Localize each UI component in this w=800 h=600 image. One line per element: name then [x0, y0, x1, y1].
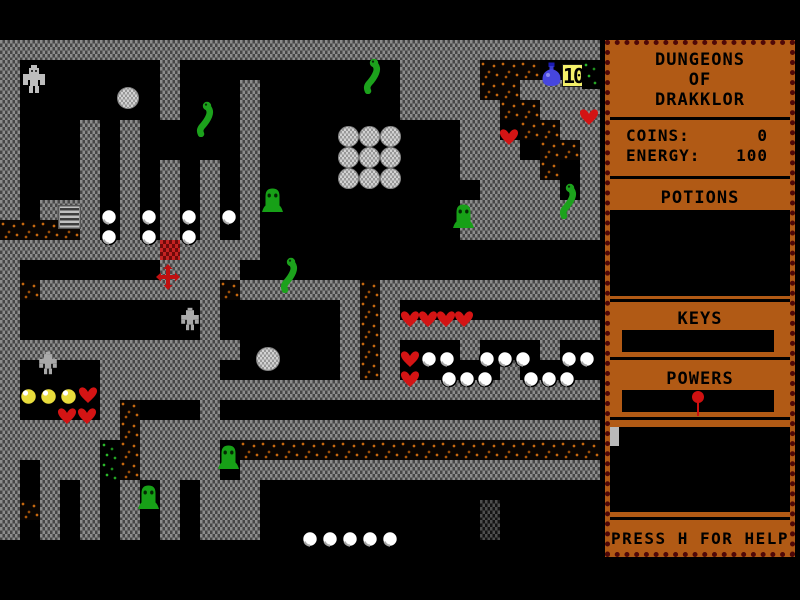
emerald-sparkle-item: [582, 60, 600, 89]
divider: [610, 357, 790, 360]
rubble-tile: [500, 100, 520, 120]
wall-tile: [120, 280, 140, 300]
wall-tile: [200, 240, 220, 260]
heart-item: [57, 407, 77, 425]
wall-tile: [480, 160, 500, 180]
wall-tile: [280, 420, 300, 440]
wall-tile: [180, 260, 200, 280]
wall-tile: [0, 260, 20, 280]
wall-tile: [160, 440, 180, 460]
pearl-item: [321, 530, 339, 548]
wall-tile: [320, 280, 340, 300]
wall-tile: [420, 460, 440, 480]
keys-bar: [622, 330, 774, 352]
pearl-item: [301, 530, 319, 548]
gold-coin-item: [59, 387, 78, 406]
heart-item: [454, 310, 474, 328]
dungeon-map[interactable]: 10: [0, 0, 600, 600]
wall-tile: [240, 280, 260, 300]
wall-tile: [580, 140, 600, 160]
wall-tile: [260, 380, 280, 400]
heart-item: [499, 128, 519, 146]
pearl-item: [361, 530, 379, 548]
wall-tile: [380, 300, 400, 320]
wall-tile: [200, 380, 220, 400]
wall-tile: [460, 120, 480, 140]
wall-tile: [0, 520, 20, 540]
wall-tile: [360, 460, 380, 480]
rubble-tile: [0, 220, 20, 240]
wall-tile: [280, 460, 300, 480]
wall-tile: [0, 340, 20, 360]
wall-tile: [100, 280, 120, 300]
wall-tile: [400, 40, 420, 60]
snake-enemy: [193, 100, 215, 137]
wall-tile: [320, 380, 340, 400]
wall-tile: [80, 160, 100, 180]
wall-tile: [0, 320, 20, 340]
wall-tile: [80, 520, 100, 540]
slime-enemy: [452, 202, 475, 229]
wall-tile: [520, 200, 540, 220]
rubble-tile: [20, 500, 40, 520]
rubble-tile: [20, 220, 40, 240]
wall-tile: [0, 160, 20, 180]
wall-tile: [460, 160, 480, 180]
wall-tile: [460, 40, 480, 60]
wall-tile: [0, 140, 20, 160]
wall-tile: [60, 440, 80, 460]
wall-tile: [20, 420, 40, 440]
wall-tile: [520, 460, 540, 480]
pearl-item: [100, 228, 118, 246]
rubble-tile: [560, 440, 580, 460]
rubble-tile: [280, 440, 300, 460]
wall-tile: [320, 40, 340, 60]
wall-tile: [100, 420, 120, 440]
wall-tile: [20, 40, 40, 60]
wall-tile: [0, 400, 20, 420]
wall-tile: [560, 320, 580, 340]
wall-tile: [180, 460, 200, 480]
rubble-tile: [500, 80, 520, 100]
wall-tile: [80, 220, 100, 240]
wall-tile: [440, 420, 460, 440]
wall-tile: [260, 460, 280, 480]
wall-tile: [100, 380, 120, 400]
rubble-tile: [300, 440, 320, 460]
wall-tile: [500, 320, 520, 340]
wall-tile: [500, 200, 520, 220]
wall-tile: [380, 40, 400, 60]
wall-tile: [180, 280, 200, 300]
red-brick-tile: [160, 240, 180, 260]
wall-tile: [200, 300, 220, 320]
wall-tile: [560, 220, 580, 240]
boulder-sprite: [338, 126, 359, 147]
wall-tile: [100, 400, 120, 420]
wall-tile: [220, 380, 240, 400]
wall-tile: [460, 60, 480, 80]
moss-tile: [100, 440, 120, 460]
rubble-tile: [520, 60, 540, 80]
divider: [610, 176, 790, 179]
wall-tile: [540, 280, 560, 300]
wall-tile: [260, 40, 280, 60]
wall-tile: [380, 320, 400, 340]
wall-tile: [0, 480, 20, 500]
wall-tile: [480, 180, 500, 200]
wall-tile: [200, 160, 220, 180]
coins-label: COINS:: [626, 126, 690, 145]
pearl-item: [440, 370, 458, 388]
wall-tile: [120, 220, 140, 240]
wall-tile: [520, 80, 540, 100]
wall-tile: [0, 200, 20, 220]
wall-tile: [360, 380, 380, 400]
wall-tile: [0, 40, 20, 60]
title-line-1: DUNGEONS: [610, 50, 790, 70]
wall-tile: [160, 220, 180, 240]
keys-heading: KEYS: [610, 309, 790, 329]
heart-item: [78, 386, 98, 404]
wall-tile: [200, 40, 220, 60]
wall-tile: [460, 460, 480, 480]
wall-tile: [380, 420, 400, 440]
pearl-item: [100, 208, 118, 226]
wall-tile: [80, 40, 100, 60]
wall-tile: [240, 80, 260, 100]
wall-tile: [300, 380, 320, 400]
wall-tile: [240, 100, 260, 120]
wall-tile: [420, 100, 440, 120]
wall-tile: [80, 500, 100, 520]
wall-tile: [560, 120, 580, 140]
wall-tile: [200, 520, 220, 540]
wall-tile: [40, 460, 60, 480]
rubble-tile: [20, 280, 40, 300]
boulder-sprite: [256, 347, 280, 371]
rubble-tile: [360, 360, 380, 380]
wall-tile: [40, 200, 60, 220]
rubble-tile: [480, 60, 500, 80]
wall-tile: [500, 420, 520, 440]
heart-item: [418, 310, 438, 328]
wall-tile: [280, 380, 300, 400]
wall-tile: [540, 220, 560, 240]
wall-tile: [420, 420, 440, 440]
wall-tile: [560, 100, 580, 120]
pearl-item: [496, 350, 514, 368]
rubble-tile: [520, 440, 540, 460]
wall-tile: [580, 280, 600, 300]
powers-bar: [622, 390, 774, 412]
slime-enemy: [137, 483, 160, 510]
boulder-sprite: [380, 168, 401, 189]
wall-tile: [580, 320, 600, 340]
wall-tile: [180, 340, 200, 360]
wall-tile: [140, 440, 160, 460]
wall-tile: [40, 520, 60, 540]
wall-tile: [420, 80, 440, 100]
wall-tile: [480, 120, 500, 140]
wall-tile: [320, 420, 340, 440]
wall-tile: [340, 340, 360, 360]
wall-tile: [400, 280, 420, 300]
wall-tile: [500, 380, 520, 400]
rubble-tile: [500, 440, 520, 460]
wall-tile: [220, 500, 240, 520]
wall-tile: [80, 280, 100, 300]
rubble-tile: [520, 100, 540, 120]
wall-tile: [80, 440, 100, 460]
wall-tile: [0, 500, 20, 520]
wall-tile: [160, 520, 180, 540]
rubble-tile: [360, 320, 380, 340]
wall-tile: [40, 500, 60, 520]
boulder-sprite: [359, 168, 380, 189]
rubble-tile: [520, 120, 540, 140]
wall-tile: [160, 360, 180, 380]
rubble-tile: [120, 420, 140, 440]
divider: [610, 417, 790, 420]
boulder-sprite: [338, 147, 359, 168]
wall-tile: [140, 380, 160, 400]
wall-tile: [580, 180, 600, 200]
wall-tile: [80, 240, 100, 260]
wall-tile: [200, 200, 220, 220]
wall-tile: [280, 40, 300, 60]
wall-tile: [180, 40, 200, 60]
coins-value: 0: [757, 126, 768, 145]
game-screen: 10 DUNGEONS OF DRAKKLOR COINS: 0 ENERGY:…: [0, 0, 800, 600]
wall-tile: [220, 240, 240, 260]
wall-tile: [580, 200, 600, 220]
wall-tile: [520, 280, 540, 300]
wall-tile: [300, 420, 320, 440]
wall-tile: [520, 420, 540, 440]
wall-tile: [460, 340, 480, 360]
wall-tile: [160, 80, 180, 100]
wall-tile: [0, 420, 20, 440]
divider: [610, 299, 790, 302]
wall-tile: [240, 220, 260, 240]
wall-tile: [300, 280, 320, 300]
wall-tile: [140, 460, 160, 480]
wall-tile: [580, 420, 600, 440]
cross-item: [156, 264, 180, 290]
pearl-item: [578, 350, 596, 368]
wall-tile: [240, 180, 260, 200]
pearl-item: [558, 370, 576, 388]
rubble-tile: [360, 440, 380, 460]
pearl-item: [522, 370, 540, 388]
wall-tile: [480, 420, 500, 440]
wall-tile: [180, 360, 200, 380]
wall-tile: [0, 80, 20, 100]
wall-tile: [240, 520, 260, 540]
powers-heading: POWERS: [610, 369, 790, 389]
wall-tile: [120, 380, 140, 400]
rubble-tile: [220, 280, 240, 300]
wall-tile: [440, 280, 460, 300]
wall-tile: [80, 180, 100, 200]
wall-tile: [240, 460, 260, 480]
wall-tile: [160, 380, 180, 400]
wall-tile: [380, 380, 400, 400]
wall-tile: [380, 460, 400, 480]
wall-tile: [480, 100, 500, 120]
wall-tile: [580, 460, 600, 480]
wall-tile: [120, 40, 140, 60]
dark-wall-tile: [480, 520, 500, 540]
wall-tile: [120, 360, 140, 380]
rubble-tile: [260, 440, 280, 460]
wall-tile: [240, 200, 260, 220]
wall-tile: [460, 80, 480, 100]
wall-tile: [340, 320, 360, 340]
wall-tile: [0, 240, 20, 260]
wall-tile: [380, 340, 400, 360]
wall-tile: [120, 340, 140, 360]
heart-item: [77, 407, 97, 425]
wall-tile: [120, 160, 140, 180]
wall-tile: [200, 500, 220, 520]
snake-enemy: [277, 256, 299, 293]
wall-tile: [440, 100, 460, 120]
boulder-sprite: [380, 126, 401, 147]
wall-tile: [40, 440, 60, 460]
wall-tile: [500, 220, 520, 240]
wall-tile: [0, 440, 20, 460]
wall-tile: [520, 160, 540, 180]
wall-tile: [140, 40, 160, 60]
wall-tile: [220, 420, 240, 440]
wall-tile: [580, 220, 600, 240]
wall-tile: [220, 260, 240, 280]
wall-tile: [560, 420, 580, 440]
snake-enemy: [556, 182, 578, 219]
pearl-item: [220, 208, 238, 226]
wall-tile: [160, 40, 180, 60]
energy-label: ENERGY:: [626, 146, 700, 165]
wall-tile: [360, 420, 380, 440]
wall-tile: [140, 340, 160, 360]
pearl-item: [476, 370, 494, 388]
wall-tile: [240, 420, 260, 440]
wall-tile: [120, 200, 140, 220]
wall-tile: [540, 40, 560, 60]
snake-enemy: [360, 57, 382, 94]
wall-tile: [540, 100, 560, 120]
wall-tile: [40, 480, 60, 500]
wall-tile: [520, 320, 540, 340]
rubble-tile: [400, 440, 420, 460]
boulder-sprite: [380, 147, 401, 168]
wall-tile: [220, 480, 240, 500]
gold-coin-item: [19, 387, 38, 406]
wall-tile: [100, 40, 120, 60]
wall-tile: [160, 500, 180, 520]
title-line-3: DRAKKLOR: [610, 90, 790, 110]
wall-tile: [20, 240, 40, 260]
boulder-sprite: [359, 126, 380, 147]
wall-tile: [240, 380, 260, 400]
pearl-item: [560, 350, 578, 368]
wall-tile: [440, 60, 460, 80]
slime-enemy: [217, 443, 240, 470]
wall-tile: [480, 280, 500, 300]
wall-tile: [200, 420, 220, 440]
wall-tile: [240, 240, 260, 260]
wall-tile: [460, 100, 480, 120]
wall-tile: [0, 300, 20, 320]
wall-tile: [40, 240, 60, 260]
rubble-tile: [580, 440, 600, 460]
wall-tile: [520, 220, 540, 240]
wall-tile: [380, 360, 400, 380]
wall-tile: [500, 280, 520, 300]
energy-stat: ENERGY: 100: [626, 146, 768, 165]
wall-tile: [140, 420, 160, 440]
wall-tile: [500, 180, 520, 200]
potions-box: [610, 210, 790, 296]
rubble-tile: [480, 440, 500, 460]
golem-sprite: [36, 350, 60, 376]
wall-tile: [200, 280, 220, 300]
wall-tile: [340, 380, 360, 400]
wall-tile: [100, 360, 120, 380]
wall-tile: [400, 420, 420, 440]
wall-tile: [0, 460, 20, 480]
wall-tile: [60, 460, 80, 480]
title-line-2: OF: [610, 70, 790, 90]
potion-item: [540, 62, 563, 90]
pearl-item: [180, 228, 198, 246]
wall-tile: [20, 440, 40, 460]
coin-count-badge: 10: [562, 64, 583, 87]
wall-tile: [80, 120, 100, 140]
wall-tile: [220, 520, 240, 540]
rubble-tile: [480, 80, 500, 100]
wall-tile: [540, 460, 560, 480]
wall-tile: [200, 360, 220, 380]
rubble-tile: [240, 440, 260, 460]
wall-tile: [60, 340, 80, 360]
wall-tile: [160, 160, 180, 180]
wall-tile: [460, 140, 480, 160]
rubble-tile: [340, 440, 360, 460]
wall-tile: [200, 180, 220, 200]
status-panel: DUNGEONS OF DRAKKLOR COINS: 0 ENERGY: 10…: [605, 40, 795, 557]
wall-tile: [500, 40, 520, 60]
wall-tile: [240, 140, 260, 160]
wall-tile: [400, 60, 420, 80]
wall-tile: [340, 40, 360, 60]
wall-tile: [300, 40, 320, 60]
wall-tile: [400, 460, 420, 480]
rubble-tile: [320, 440, 340, 460]
wall-tile: [480, 220, 500, 240]
wall-tile: [340, 420, 360, 440]
wall-tile: [300, 460, 320, 480]
wall-tile: [420, 280, 440, 300]
wall-tile: [260, 420, 280, 440]
wall-tile: [160, 100, 180, 120]
coins-stat: COINS: 0: [626, 126, 768, 145]
wall-tile: [120, 520, 140, 540]
wall-tile: [400, 100, 420, 120]
